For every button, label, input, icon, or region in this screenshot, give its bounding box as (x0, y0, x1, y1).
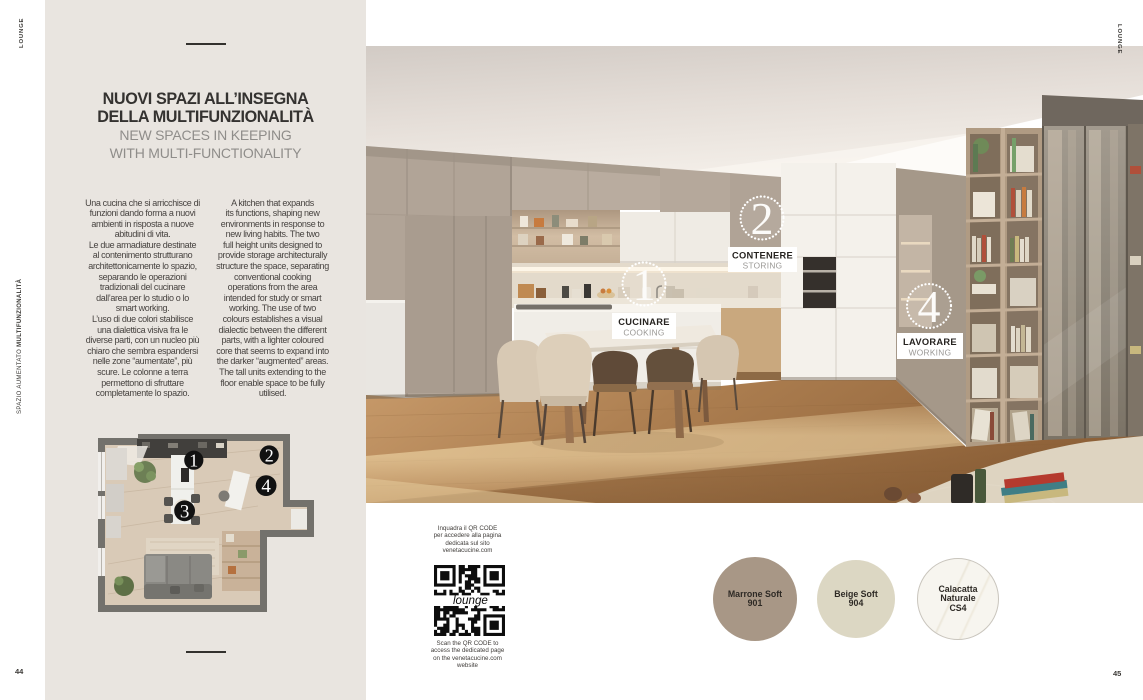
svg-text:STORING: STORING (743, 261, 783, 271)
svg-text:2: 2 (265, 445, 274, 465)
svg-text:LAVORARE: LAVORARE (903, 337, 957, 347)
svg-text:CUCINARE: CUCINARE (618, 317, 669, 327)
svg-text:CONTENERE: CONTENERE (732, 251, 793, 261)
svg-text:lounge: lounge (453, 594, 488, 607)
svg-text:1: 1 (633, 259, 656, 310)
svg-text:WORKING: WORKING (909, 348, 952, 358)
svg-text:COOKING: COOKING (623, 328, 664, 338)
svg-text:4: 4 (261, 476, 271, 497)
svg-text:3: 3 (180, 501, 190, 522)
svg-text:1: 1 (189, 451, 198, 471)
svg-text:4: 4 (918, 281, 941, 332)
svg-text:2: 2 (751, 193, 774, 244)
